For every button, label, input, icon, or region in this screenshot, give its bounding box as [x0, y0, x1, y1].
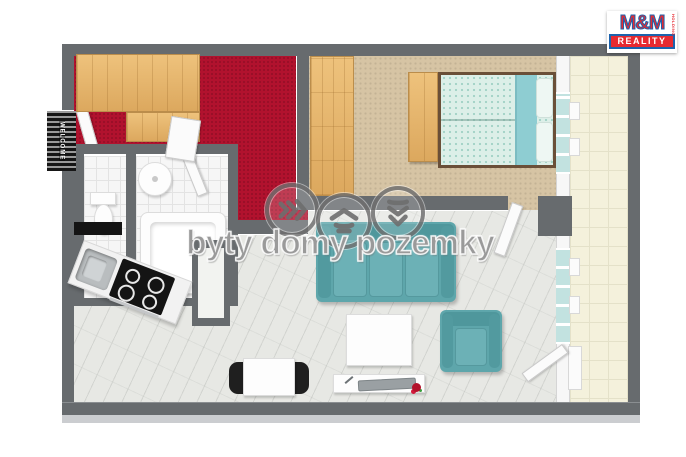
monitor: [358, 377, 416, 391]
hallway-wardrobe: [76, 54, 200, 112]
balcony-door-threshold: [568, 346, 582, 390]
burner: [123, 267, 142, 286]
logo-reality-text: REALITY: [609, 34, 675, 49]
armchair-armrest: [442, 314, 453, 368]
floorplan-render: WELCOME byty domy pozemky M&M HOLDING RE…: [0, 0, 686, 457]
watermark-text: byty domy pozemky: [150, 224, 530, 263]
bedroom-window-glass: [556, 92, 570, 174]
logo-mm-text: M&M: [608, 12, 676, 34]
window-sill: [569, 258, 580, 276]
mm-reality-logo: M&M HOLDING REALITY: [607, 11, 677, 53]
bedside-cabinet: [408, 72, 438, 162]
wall-stub-bedroom-door: [538, 196, 572, 236]
burner: [145, 274, 167, 296]
doormat: WELCOME: [47, 111, 76, 171]
double-bed: [438, 72, 556, 168]
bed-blanket: [515, 75, 537, 165]
outer-wall-left: [62, 44, 74, 404]
outer-wall-right: [628, 44, 640, 415]
bedroom-tall-wardrobe: [310, 56, 354, 196]
dark-shelf: [74, 222, 122, 235]
living-window-glass: [556, 248, 570, 344]
window-sill: [569, 296, 580, 314]
bed-pillow: [536, 122, 553, 162]
doormat-text: WELCOME: [59, 121, 65, 161]
outer-wall-bottom: [62, 402, 640, 416]
logo-holding-text: HOLDING: [671, 14, 676, 36]
outer-wall-bottom-face: [62, 415, 640, 423]
bed-pillow: [536, 78, 553, 118]
dining-table: [243, 358, 295, 396]
window-sill: [569, 138, 580, 156]
armchair-armrest: [489, 314, 500, 368]
armchair-cushion: [455, 328, 487, 366]
pen: [345, 376, 354, 384]
sink-drain: [152, 176, 158, 182]
desk: [333, 374, 425, 393]
flowers: [412, 383, 421, 392]
window-sill: [569, 102, 580, 120]
armchair: [440, 310, 502, 372]
coffee-table: [346, 314, 412, 366]
